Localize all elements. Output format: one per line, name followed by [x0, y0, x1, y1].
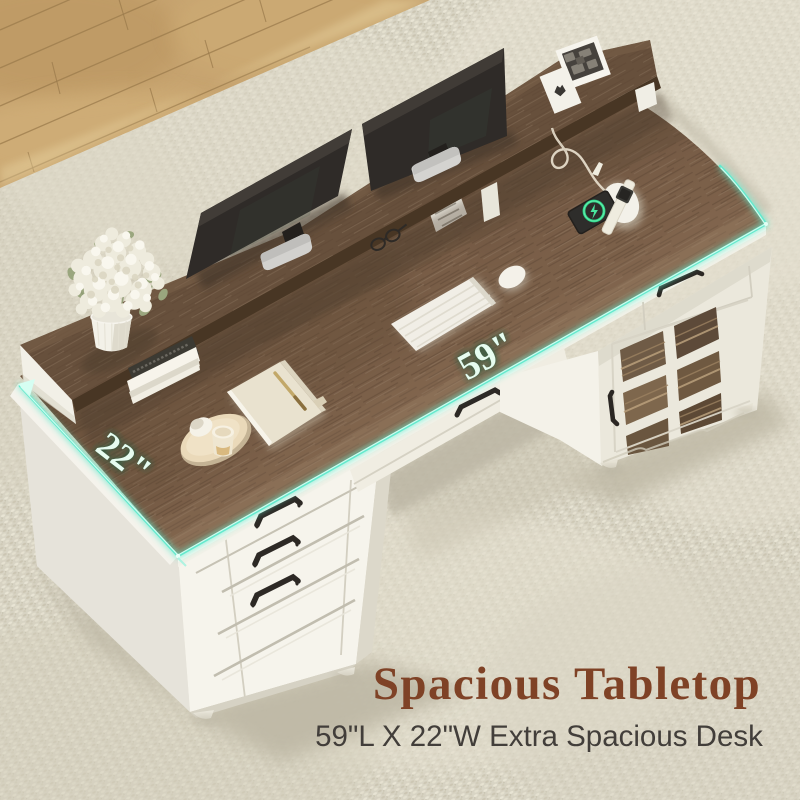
svg-text:59"L X 22"W Extra Spacious Des: 59"L X 22"W Extra Spacious Desk — [315, 720, 763, 753]
svg-text:Spacious Tabletop: Spacious Tabletop — [373, 658, 761, 710]
